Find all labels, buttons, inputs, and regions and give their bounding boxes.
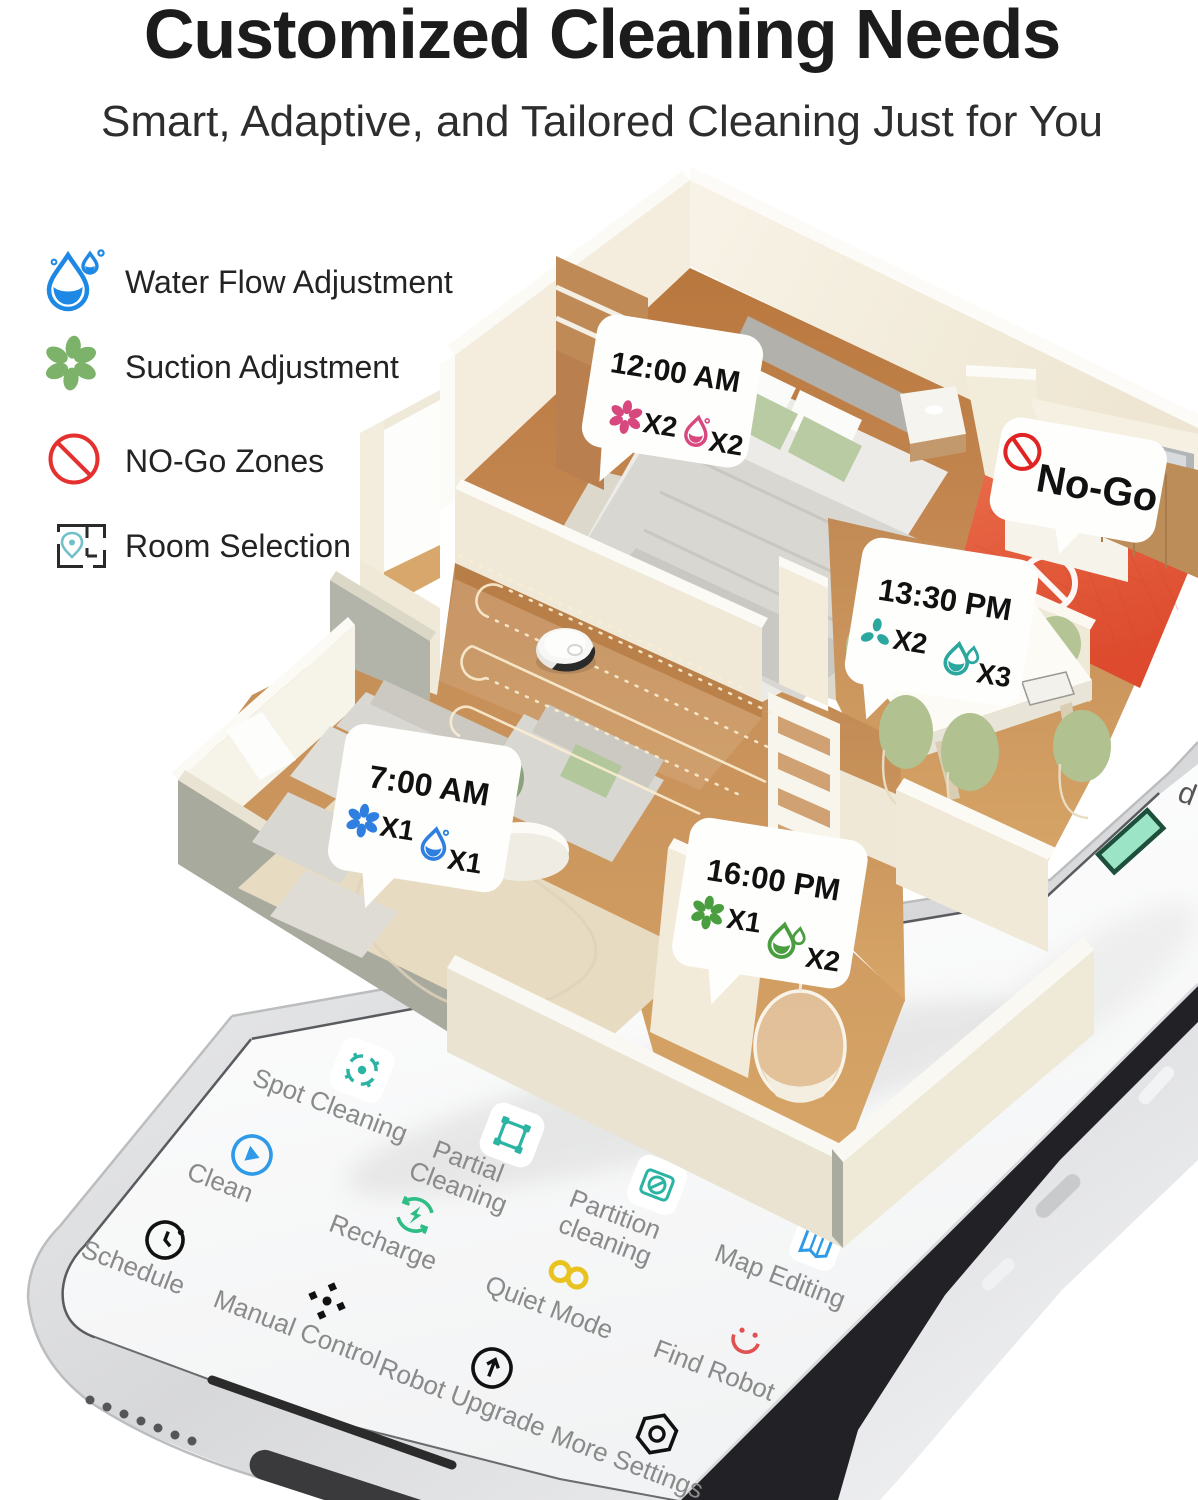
svg-text:X2: X2	[707, 426, 746, 462]
svg-text:X1: X1	[725, 903, 764, 939]
svg-text:Suction Adjustment: Suction Adjustment	[125, 349, 399, 385]
svg-text:Room Selection: Room Selection	[125, 528, 351, 564]
svg-text:NO-Go Zones: NO-Go Zones	[125, 443, 324, 479]
svg-text:X2: X2	[891, 624, 930, 660]
svg-text:X3: X3	[975, 657, 1014, 693]
svg-text:X2: X2	[641, 407, 680, 443]
svg-text:Water Flow Adjustment: Water Flow Adjustment	[125, 264, 453, 300]
svg-text:X2: X2	[803, 942, 842, 978]
svg-text:X1: X1	[378, 811, 417, 847]
svg-text:X1: X1	[445, 844, 484, 880]
svg-text:Customized Cleaning Needs: Customized Cleaning Needs	[144, 0, 1060, 73]
svg-text:Smart, Adaptive, and Tailored: Smart, Adaptive, and Tailored Cleaning J…	[101, 97, 1103, 146]
